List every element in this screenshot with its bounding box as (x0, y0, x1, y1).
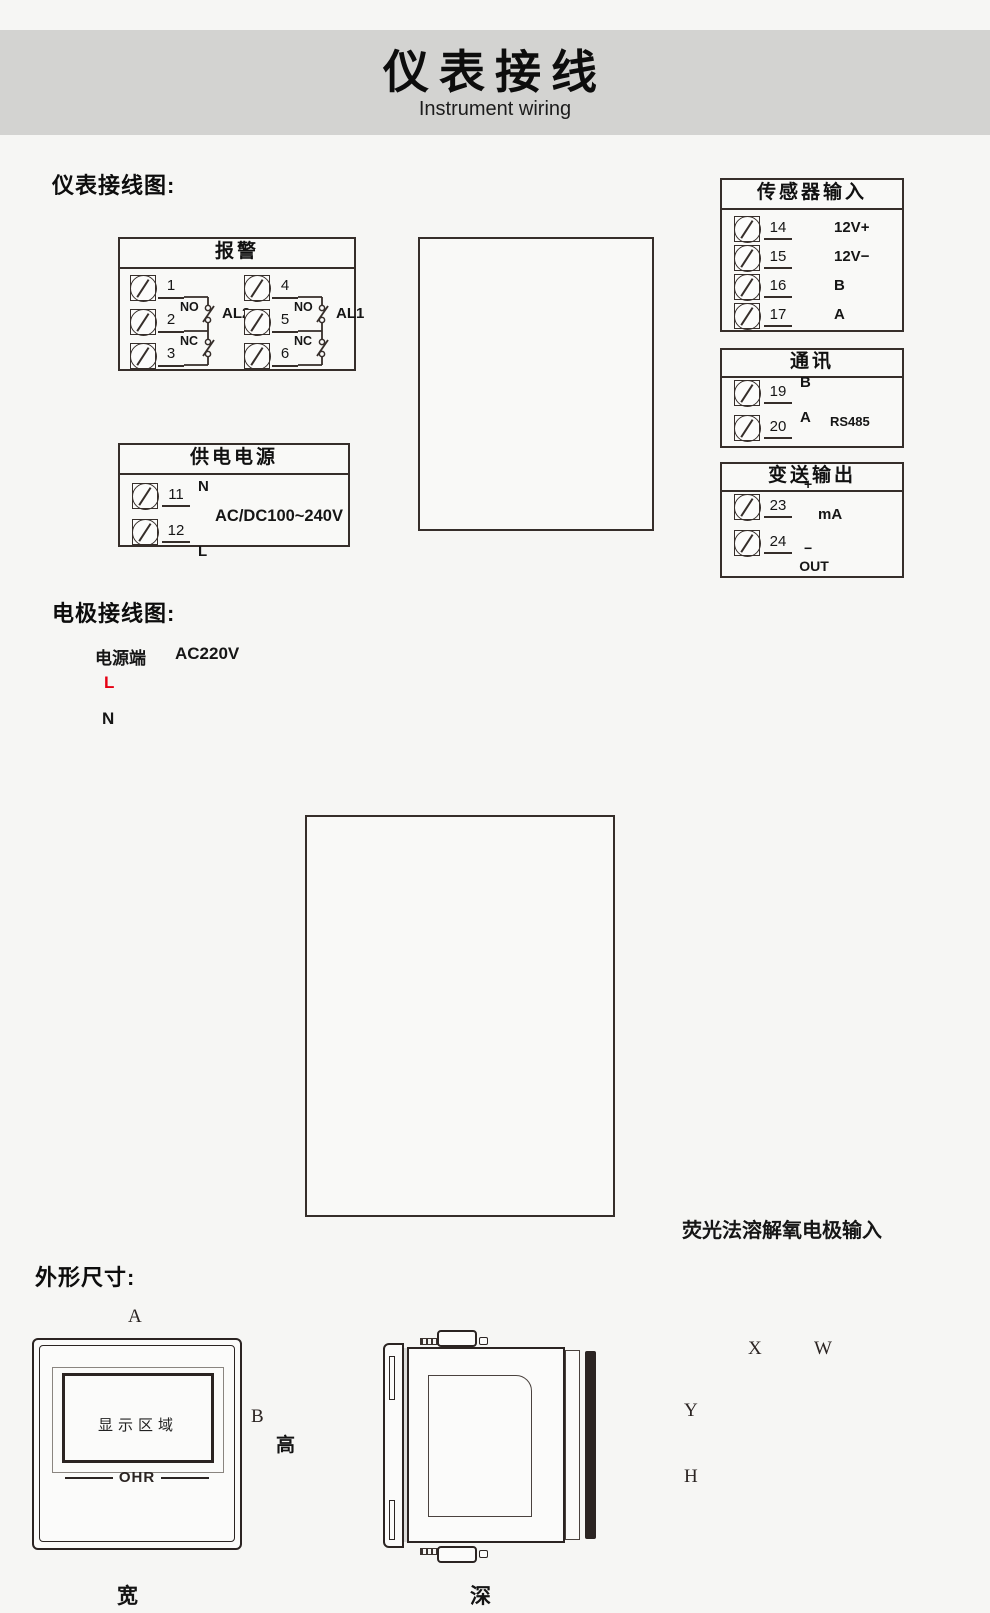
instrument-wiring-page: 仪表接线 Instrument wiring 仪表接线图: 电极接线图: 外形尺… (0, 0, 990, 1613)
display-screen: 显示区域 (62, 1373, 214, 1463)
screw-terminal-icon (734, 380, 760, 406)
section-label-wiring: 仪表接线图: (52, 168, 175, 200)
brand-divider (161, 1477, 209, 1479)
alarm-terminal: 1 (130, 275, 184, 301)
terminal-number: 20 (764, 416, 792, 439)
alarm-group-al2: 1 2 3 NO NC AL2 (130, 275, 248, 371)
clamp-screw-head-bottom (479, 1550, 488, 1558)
sensor-input-box: 传感器输入 1412V+ 1512V− 16B 17A (720, 178, 904, 332)
display-area-label: 显示区域 (65, 1414, 211, 1435)
neutral-line-label: N (102, 709, 114, 729)
alarm-terminal: 4 (244, 275, 298, 301)
rs485-b-label: B (800, 374, 811, 391)
sensor-terminal-row: 17A (722, 303, 906, 329)
screw-terminal-icon (130, 309, 156, 335)
screw-terminal-icon (244, 343, 270, 369)
alarm-relay-name: AL1 (336, 305, 364, 322)
nc-contact-label: NC (180, 334, 198, 348)
width-dim-label: 宽 (117, 1580, 138, 1610)
terminal-block-main (418, 237, 654, 531)
no-contact-label: NO (294, 300, 313, 314)
dim-a-label: A (128, 1306, 142, 1328)
screw-terminal-icon (734, 494, 760, 520)
relay-contact-icon (184, 275, 220, 371)
section-label-dimensions: 外形尺寸: (35, 1260, 135, 1292)
probe-label: 荧光法溶解氧电极输入 (682, 1214, 882, 1243)
ac220v-label: AC220V (175, 644, 239, 664)
terminal-number: 19 (764, 381, 792, 404)
output-minus-label: − (804, 540, 812, 556)
screw-terminal-icon (130, 275, 156, 301)
alarm-box: 报警 1 2 3 NO NC AL2 4 5 6 (118, 237, 356, 371)
bezel-slot (389, 1356, 395, 1400)
nc-contact-label: NC (294, 334, 312, 348)
alarm-group-al1: 4 5 6 NO NC AL1 (244, 275, 362, 371)
screw-terminal-icon (132, 519, 158, 545)
protocol-label: RS485 (830, 414, 870, 429)
comm-box-title: 通讯 (722, 350, 902, 378)
terminal-cover-bar (585, 1351, 596, 1539)
alarm-terminal: 6 (244, 343, 298, 369)
terminal-number: 24 (764, 531, 792, 554)
screw-terminal-icon (132, 483, 158, 509)
power-supply-box: 供电电源 11 N 12 L AC/DC100~240V (118, 443, 350, 547)
case-inner-panel (428, 1375, 532, 1517)
sensor-signal-label: B (834, 277, 845, 294)
output-terminal-row: 24 (722, 530, 906, 556)
no-contact-label: NO (180, 300, 199, 314)
bezel-slot (389, 1500, 395, 1540)
screw-terminal-icon (734, 415, 760, 441)
alarm-terminal: 3 (130, 343, 184, 369)
comm-terminal-row: 19B (722, 380, 906, 406)
depth-dim-label: 深 (470, 1580, 491, 1610)
screw-terminal-icon (734, 274, 760, 300)
power-voltage-label: AC/DC100~240V (206, 507, 352, 526)
screw-terminal-icon (734, 216, 760, 242)
terminal-number: 14 (764, 217, 792, 240)
output-plus-label: + (804, 476, 812, 492)
terminal-number: 12 (162, 520, 190, 543)
screw-terminal-icon (734, 530, 760, 556)
terminal-number: 23 (764, 495, 792, 518)
live-label: L (198, 543, 207, 560)
terminal-number: 17 (764, 304, 792, 327)
section-label-electrode: 电极接线图: (52, 596, 175, 628)
terminal-block-electrode (305, 815, 615, 1217)
dim-b-label: B (251, 1406, 264, 1428)
terminal-strip-side (565, 1350, 580, 1540)
sensor-terminal-row: 1412V+ (722, 216, 906, 242)
cutout-x-label: X (748, 1338, 762, 1360)
height-dim-label: 高 (276, 1430, 295, 1457)
output-terminal-row: 23 (722, 494, 906, 520)
power-source-label: 电源端 (95, 644, 146, 669)
neutral-label: N (198, 478, 209, 495)
terminal-number: 15 (764, 246, 792, 269)
sensor-signal-label: 12V− (834, 248, 869, 265)
output-out-label: OUT (786, 558, 842, 574)
cutout-w-label: W (814, 1338, 832, 1360)
sensor-signal-label: 12V+ (834, 219, 869, 236)
transmitter-output-box: 变送输出 23 24 + − mA OUT (720, 462, 904, 578)
alarm-terminal: 5 (244, 309, 298, 335)
sensor-signal-label: A (834, 306, 845, 323)
clamp-screw-head-top (479, 1337, 488, 1345)
cutout-y-label: Y (684, 1400, 698, 1422)
communication-box: 通讯 19B 20A RS485 (720, 348, 904, 448)
cutout-h-label: H (684, 1466, 698, 1488)
terminal-number: 4 (272, 275, 298, 299)
comm-terminal-row: 20A (722, 415, 906, 441)
alarm-box-title: 报警 (120, 239, 354, 269)
page-subtitle: Instrument wiring (0, 98, 990, 121)
relay-contact-icon (298, 275, 334, 371)
screw-terminal-icon (734, 245, 760, 271)
page-title: 仪表接线 (0, 36, 990, 102)
output-unit-label: mA (818, 506, 842, 523)
terminal-number: 16 (764, 275, 792, 298)
terminal-number: 1 (158, 275, 184, 299)
alarm-terminal: 2 (130, 309, 184, 335)
live-line-label: L (104, 673, 114, 693)
screw-terminal-icon (130, 343, 156, 369)
screw-terminal-icon (734, 303, 760, 329)
screw-terminal-icon (244, 275, 270, 301)
screw-terminal-icon (244, 309, 270, 335)
terminal-number: 11 (162, 484, 190, 507)
power-terminal-row: 11 N (120, 483, 352, 509)
mount-clamp-top (437, 1330, 477, 1347)
sensor-box-title: 传感器输入 (722, 180, 902, 210)
sensor-terminal-row: 1512V− (722, 245, 906, 271)
brand-divider (65, 1477, 113, 1479)
sensor-terminal-row: 16B (722, 274, 906, 300)
power-box-title: 供电电源 (120, 445, 348, 475)
mount-clamp-bottom (437, 1546, 477, 1563)
rs485-a-label: A (800, 409, 811, 426)
